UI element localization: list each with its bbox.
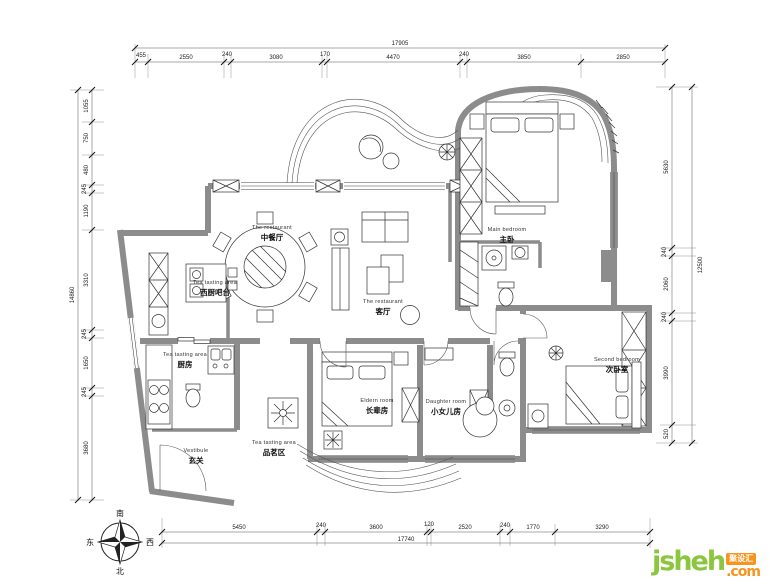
room-label-zh: 品茗区 [263,447,286,457]
dimension-chain-bottom: 5450 240 3600 120 2520 240 1770 3290 177… [159,518,653,548]
logo-wordmark: jsheh [652,549,724,575]
dim-total: 17740 [398,537,415,543]
room-label-en: Daughter room [426,399,467,405]
pillow [616,396,628,418]
master-wardrobe [460,138,482,234]
floor-plan-page: The restaurant 中餐厅 The restaurant 客厅 Mai… [0,0,770,586]
dim-label: 2550 [179,55,193,61]
basin [512,246,528,259]
dim-label: 240 [662,246,668,257]
compass-west-label: 西 [146,538,154,547]
ceiling-fan-icon [549,346,563,360]
sliding-door [194,340,210,344]
compass-east-label: 东 [86,537,94,547]
dim-label: 1650 [84,356,90,370]
logo-tld: .com [726,565,760,579]
room-label-zh: 小女儿房 [431,406,461,416]
second-bedroom-door-arc [523,314,547,338]
dim-label: 480 [84,164,90,175]
master-bed [470,102,574,214]
compass-north-label: 北 [116,567,124,576]
coffee-table [367,267,389,294]
room-label-en: Vestibule [183,448,208,454]
elder-wardrobe [402,388,419,422]
sofa-long [332,248,349,310]
dim-label: 1055 [84,99,90,113]
dim-label: 520 [664,428,670,439]
dim-label: 2850 [616,55,630,61]
dim-label: 245 [82,386,88,397]
room-label-zh: 中餐厅 [261,232,284,242]
room-label-en: The restaurant [363,299,403,305]
dimension-chain-left: 1055 750 480 245 1190 3310 245 1650 245 … [70,87,104,503]
dim-label: 5450 [232,525,246,531]
dim-label: 3680 [84,441,90,455]
dim-label: 245 [82,183,88,194]
master-bath-column [460,242,478,306]
dim-label: 2060 [664,277,670,291]
wall-bottom-left [150,491,234,503]
master-bathroom [482,246,528,306]
jsheh-logo[interactable]: jsheh 聚设汇 .com [652,549,760,579]
dim-label: 3290 [595,525,609,531]
dim-label: 750 [84,132,90,143]
headboard [486,102,558,114]
dim-label: 240 [316,523,327,529]
room-label-en: Tea tasting area [193,280,238,286]
west-kitchen-cabinet [149,253,168,335]
dim-label: 240 [662,311,668,322]
plant-small-icon [383,153,399,169]
room-label-zh: 玄关 [189,455,204,465]
nightstand [394,352,408,365]
pillow [327,366,353,379]
pillow [525,118,553,132]
toilet-icon [500,358,514,376]
dim-label: 3600 [369,525,383,531]
toilet-icon [186,389,200,407]
master-door-arc [470,308,496,334]
dim-label: 3850 [517,55,531,61]
window-top-2 [344,183,445,190]
nightstand [560,114,574,129]
room-label-en: Eldern room [360,398,393,404]
dim-label: 5630 [664,160,670,174]
room-label-zh: 厨房 [178,359,193,369]
pillow [491,118,519,132]
compass-south-label: 南 [116,508,124,518]
dimension-chain-right: 5630 240 2060 240 3990 520 12500 [656,84,704,446]
tea-table [268,398,298,428]
desk [425,348,453,360]
ceiling-fan-icon [324,431,342,449]
balcony [287,95,619,183]
room-label-en: Tea tasting area [252,440,297,446]
side-table [331,229,348,245]
headboard [632,362,641,428]
curved-steps [297,444,461,492]
dim-label: 4470 [386,55,400,61]
window-top-1 [241,183,314,190]
ceiling-fan-icon [439,144,455,160]
plant-icon [359,135,383,159]
round-table [401,306,420,325]
dim-total: 12500 [698,256,704,273]
room-label-en: The restaurant [252,225,292,231]
room-label-zh: 客厅 [375,306,391,316]
dim-label: 3310 [84,273,90,287]
dim-label: 3080 [269,55,283,61]
left-window-gap [131,318,137,368]
toilet-tank [498,282,514,288]
shower [482,246,506,270]
nightstand [470,114,484,129]
bed-bench [495,206,545,214]
room-label-zh: 长辈房 [366,405,389,415]
sliding-door [178,338,194,342]
dim-label: 240 [459,52,470,58]
room-label-zh: 西厨吧台 [200,287,230,297]
pillow [359,366,385,379]
dim-total: 17905 [392,41,409,47]
basin-icon [499,400,515,416]
dim-label: 3990 [664,366,670,380]
dim-label: 1770 [526,525,540,531]
room-label-zh: 主卧 [500,234,515,244]
room-label-en: Tea tasting area [163,352,208,358]
toilet-tank [499,352,515,358]
dimension-chain-top: 455 2550 240 3080 170 4470 240 3850 2850… [132,41,668,78]
dim-label: 2520 [458,525,472,531]
compass: 南 北 东 西 [86,508,154,576]
dim-label: 240 [500,523,511,529]
small-bathroom [499,352,515,416]
room-label-en: Second bedroom [594,357,640,363]
dim-label: 245 [82,328,88,339]
dim-label: 455 [136,53,147,59]
dim-label: 1190 [84,204,90,218]
logo-right-block: 聚设汇 .com [726,553,760,579]
toilet-icon [499,288,513,306]
room-label-zh: 次卧室 [606,364,629,374]
dresser [528,404,548,428]
room-label-en: Main bedroom [488,227,527,233]
ottoman [476,397,494,415]
bar-stool [228,268,237,277]
floor-plan-drawing: The restaurant 中餐厅 The restaurant 客厅 Mai… [0,0,770,586]
dim-label: 240 [222,52,233,58]
column-solid [601,250,613,282]
headboard [322,352,392,362]
dim-label: 170 [320,52,331,58]
dim-total: 14860 [70,286,76,303]
dim-label: 120 [424,522,435,528]
